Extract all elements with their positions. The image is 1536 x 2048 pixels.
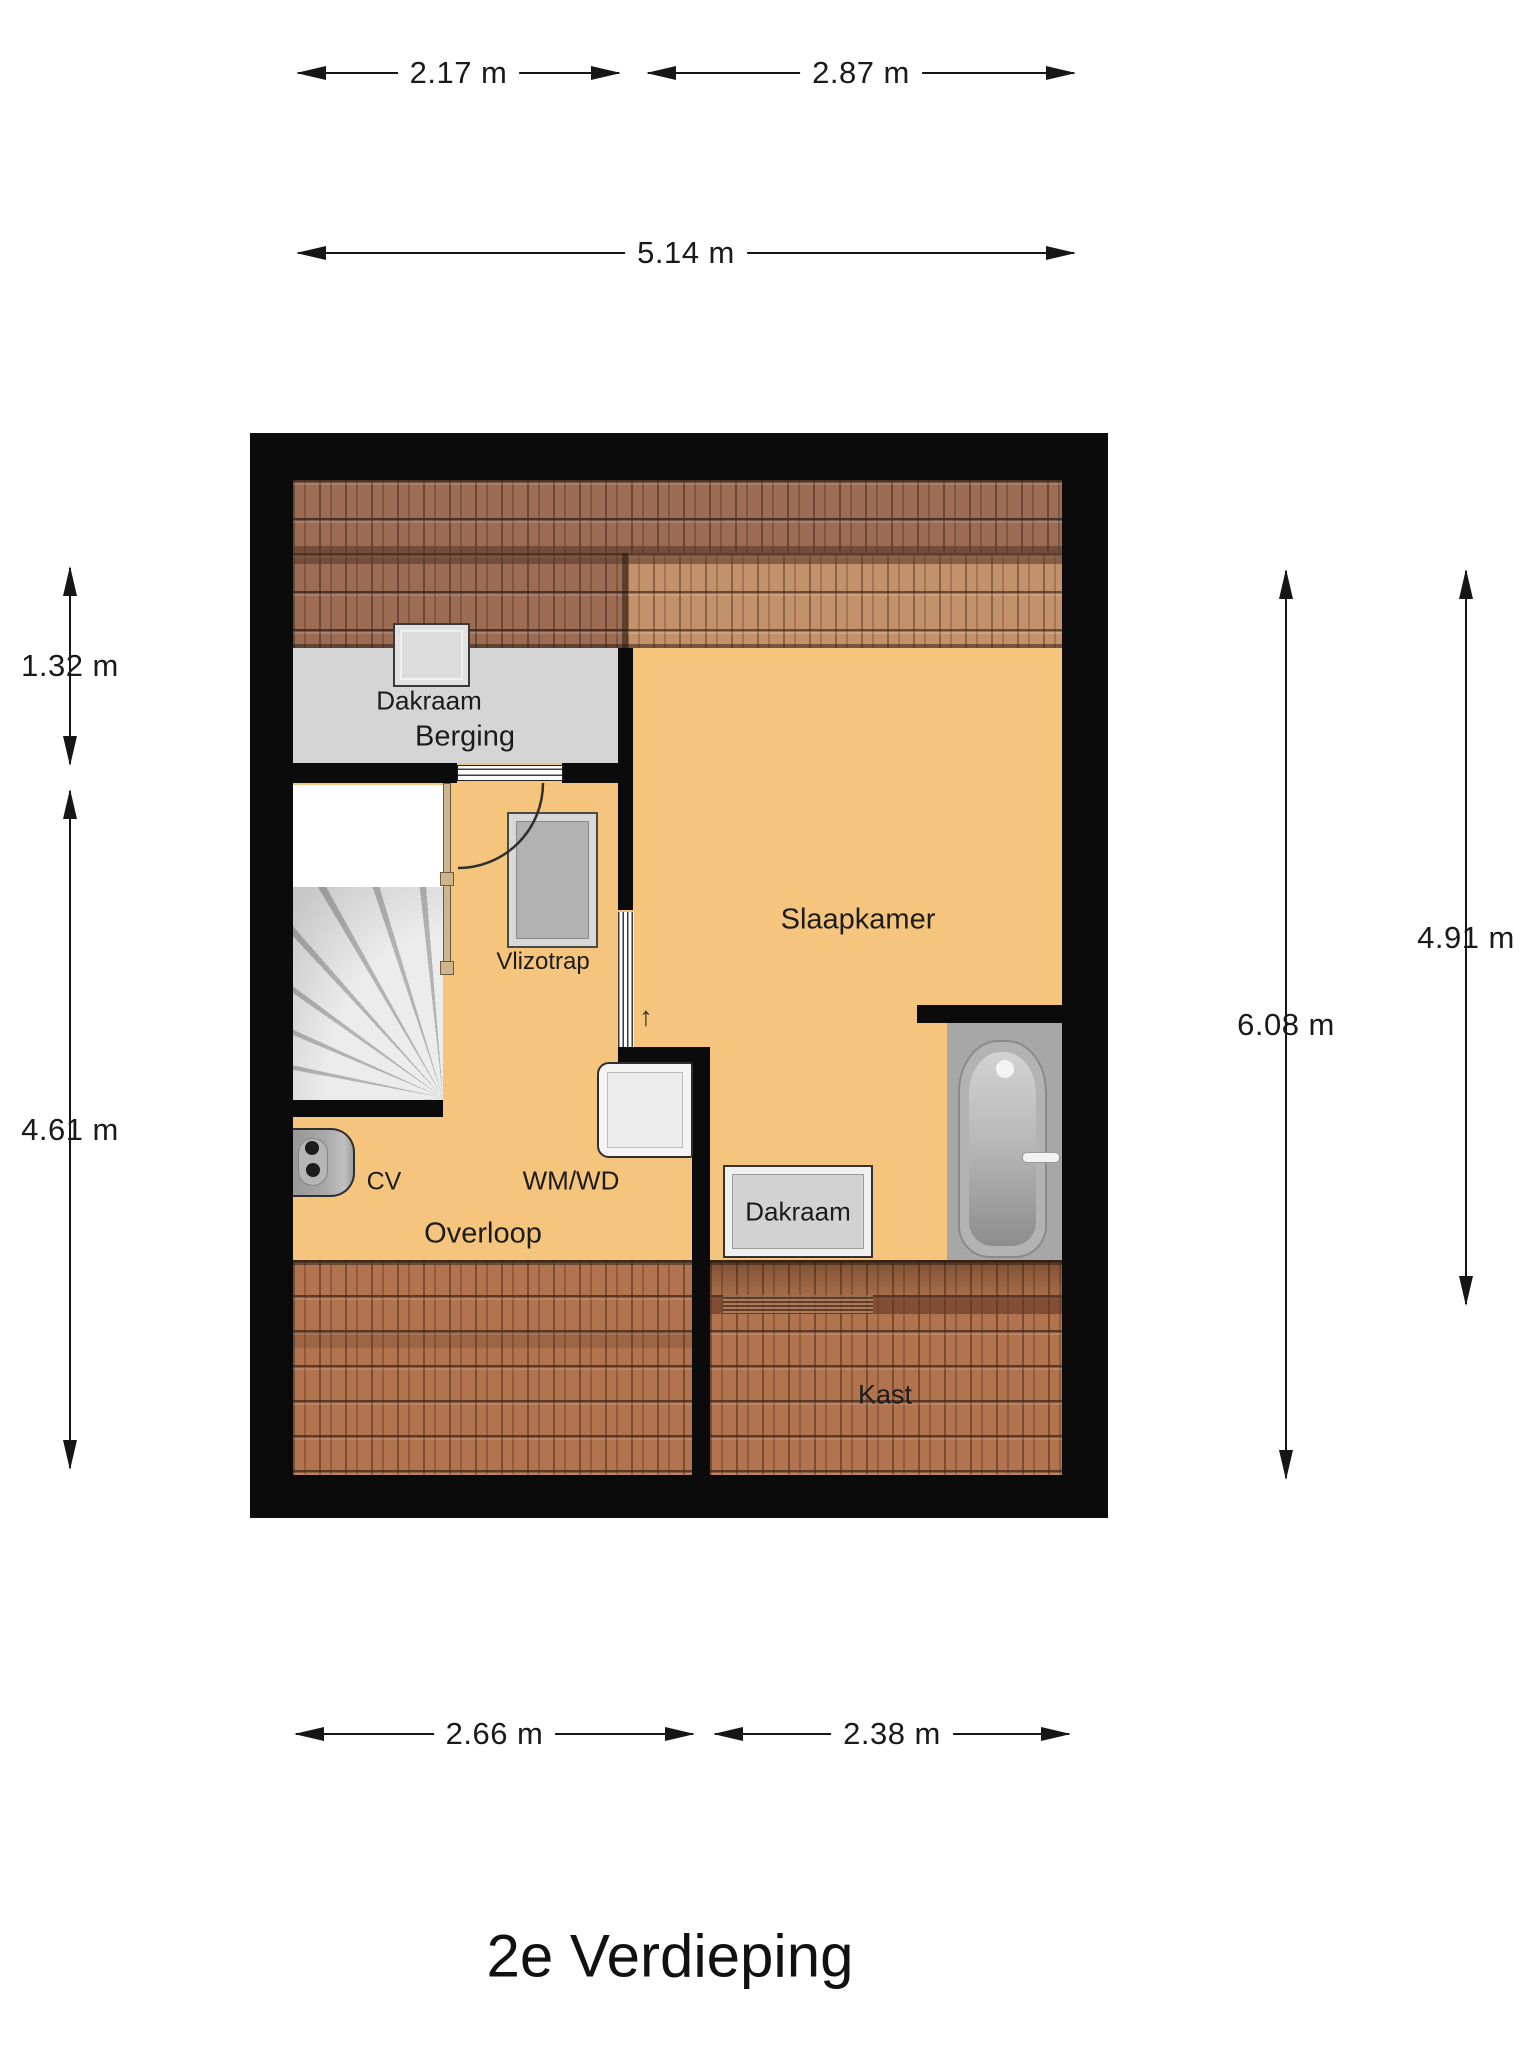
- bathtub: [958, 1040, 1047, 1258]
- dimension-top-total: 5.14 m: [296, 241, 1076, 265]
- arrowhead-left-icon: [296, 66, 326, 80]
- roof-tiles-bottom-right: Kast: [710, 1260, 1062, 1475]
- arrowhead-left-icon: [713, 1727, 743, 1741]
- arrowhead-right-icon: [665, 1727, 695, 1741]
- staircase: [293, 887, 443, 1102]
- dakraam-top-window-frame: [400, 630, 463, 680]
- dimension-label: 4.61 m: [21, 1112, 119, 1148]
- dakraam-bottom-window: Dakraam: [723, 1165, 873, 1258]
- dimension-label: 2.38 m: [831, 1716, 953, 1752]
- dimension-label: 5.14 m: [625, 235, 747, 271]
- cv-boiler: [293, 1128, 355, 1197]
- dimension-right-partial: 4.91 m: [1454, 569, 1478, 1306]
- wm-wd-label: WM/WD: [523, 1166, 620, 1197]
- arrowhead-right-icon: [1041, 1727, 1071, 1741]
- cv-knob: [306, 1163, 320, 1177]
- dimension-top-right: 2.87 m: [646, 61, 1076, 85]
- room-label-kast: Kast: [858, 1380, 912, 1411]
- dimension-label: 1.32 m: [21, 648, 119, 684]
- cv-knob: [305, 1141, 319, 1155]
- cv-label: CV: [367, 1168, 402, 1197]
- wall-berging-slaapkamer: [618, 648, 633, 910]
- arrowhead-right-icon: [1046, 246, 1076, 260]
- dimension-label: 4.91 m: [1417, 920, 1515, 956]
- dimension-right-total: 6.08 m: [1274, 569, 1298, 1480]
- arrowhead-right-icon: [591, 66, 621, 80]
- arrowhead-down-icon: [1459, 1276, 1473, 1306]
- arrowhead-left-icon: [294, 1727, 324, 1741]
- floor-title: 2e Verdieping: [487, 1922, 854, 1991]
- roof-ridge-faint: [293, 1330, 692, 1348]
- roof-tiles-bottom-left: [293, 1260, 692, 1475]
- wall-overloop-kast: [692, 1063, 710, 1475]
- dimension-top-left: 2.17 m: [296, 61, 621, 85]
- dimension-left-lower: 4.61 m: [58, 789, 82, 1470]
- dimension-label: 6.08 m: [1237, 1007, 1335, 1043]
- wall-berging-bottom-right: [562, 763, 618, 783]
- roof-ridge-stripes: [723, 1295, 873, 1314]
- arrowhead-up-icon: [1459, 569, 1473, 599]
- wall-overloop-slaapkamer: [618, 1047, 710, 1063]
- plan-outer-walls: Dakraam Berging Vlizotrap: [250, 433, 1108, 1518]
- vlizotrap-hatch: [507, 812, 598, 948]
- arrowhead-up-icon: [63, 789, 77, 819]
- vlizotrap-label: Vlizotrap: [496, 948, 589, 976]
- bathtub-grab-bar: [1022, 1152, 1060, 1163]
- wall-berging-bottom-left: [293, 763, 457, 783]
- dimension-label: 2.17 m: [398, 55, 520, 91]
- floorplan-canvas: 2.17 m 2.87 m 5.14 m 2.66 m 2.38 m 1.32 …: [0, 0, 1536, 2048]
- vlizotrap-hatch-panel: [516, 821, 589, 939]
- bathtub-drain: [996, 1060, 1014, 1078]
- arrowhead-down-icon: [63, 1440, 77, 1470]
- plan-floor-area: Dakraam Berging Vlizotrap: [293, 480, 1062, 1475]
- washer-dryer-appliance: [597, 1062, 693, 1158]
- dakraam-top-label: Dakraam: [376, 686, 481, 717]
- roof-eave-bottom: [710, 1260, 1062, 1265]
- roof-eave-bottom: [293, 1260, 692, 1265]
- stairs-direction-arrow-icon: ↑: [639, 1002, 653, 1033]
- dakraam-bottom-label: Dakraam: [745, 1196, 850, 1227]
- wall-under-stairs: [293, 1100, 443, 1117]
- arrowhead-left-icon: [646, 66, 676, 80]
- dimension-bottom-left: 2.66 m: [294, 1722, 695, 1746]
- dimension-label: 2.87 m: [800, 55, 922, 91]
- arrowhead-up-icon: [1279, 569, 1293, 599]
- railing-post: [440, 961, 454, 975]
- arrowhead-down-icon: [1279, 1450, 1293, 1480]
- roof-seam: [622, 553, 628, 648]
- bathtub-basin: [969, 1052, 1036, 1246]
- dimension-left-upper: 1.32 m: [58, 566, 82, 766]
- berging-door: [457, 765, 563, 781]
- dimension-label: 2.66 m: [434, 1716, 556, 1752]
- room-label-berging: Berging: [415, 721, 515, 754]
- arrowhead-up-icon: [63, 566, 77, 596]
- stairwell-opening: [293, 785, 443, 887]
- dimension-bottom-right: 2.38 m: [713, 1722, 1071, 1746]
- railing-post: [440, 872, 454, 886]
- room-label-slaapkamer: Slaapkamer: [781, 904, 936, 937]
- roof-tiles-top-lower-right: [627, 553, 1062, 648]
- arrowhead-right-icon: [1046, 66, 1076, 80]
- dakraam-top-window: [393, 623, 470, 687]
- washer-dryer-door: [607, 1072, 683, 1148]
- wall-bath: [917, 1005, 1062, 1023]
- roof-ridge-top: [293, 546, 1062, 564]
- arrowhead-down-icon: [63, 736, 77, 766]
- stair-balustrade-window: [618, 912, 634, 1047]
- roof-tiles-top-upper: [293, 480, 1062, 555]
- arrowhead-left-icon: [296, 246, 326, 260]
- room-label-overloop: Overloop: [424, 1218, 542, 1251]
